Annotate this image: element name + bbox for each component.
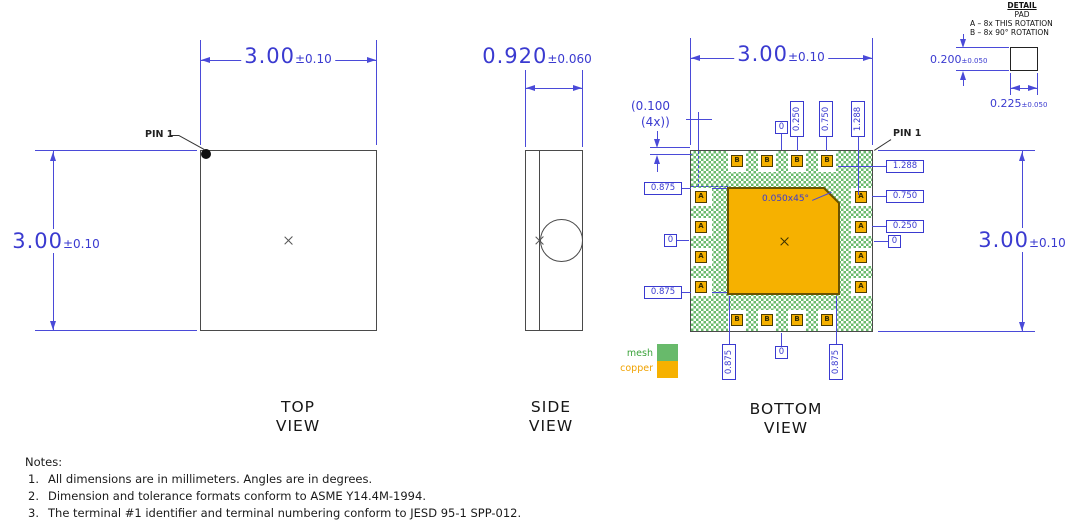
dim-label-top-0750: 0.750 [819, 101, 833, 137]
dim-arrow [1011, 85, 1020, 91]
pad-a: A [855, 251, 867, 263]
dim-arrow [1019, 152, 1025, 161]
label-leader [836, 296, 837, 344]
note-item-number: 3. [28, 506, 39, 520]
pad-a: A [695, 251, 707, 263]
pad-b: B [761, 155, 773, 167]
legend-mesh-swatch [657, 344, 678, 361]
dim-label-right-1288: 1.288 [886, 160, 924, 173]
pad-a: A [855, 281, 867, 293]
dim-arrow [863, 55, 872, 61]
legend-copper-swatch [657, 361, 678, 378]
dim-label-bottom-0: 0 [775, 346, 788, 359]
dim-label-left-0875-bottom: 0.875 [644, 286, 682, 299]
dim-arrow [50, 321, 56, 330]
side-view-width-dim: 0.920±0.060 [479, 44, 595, 68]
detail-subtitle: PAD [1015, 10, 1030, 19]
pad-a: A [855, 221, 867, 233]
bottom-view-height-dim: 3.00±0.10 [975, 228, 1069, 252]
detail-width-dim: 0.225±0.050 [988, 97, 1049, 110]
dim-ext-line [878, 331, 1035, 332]
pin1-marker-dot [201, 149, 211, 159]
dim-label-top-1288: 1.288 [851, 101, 865, 137]
dim-label-right-0250: 0.250 [886, 220, 924, 233]
dim-ext-line [1010, 73, 1011, 95]
dim-label-top-0250: 0.250 [790, 101, 804, 137]
pad-a: A [695, 281, 707, 293]
dim-ext-line [872, 38, 873, 145]
corner-offset-note: (4x)) [641, 115, 670, 129]
legend-copper-label: copper [600, 363, 653, 374]
notes-heading: Notes: [25, 455, 62, 469]
dim-line [963, 78, 964, 86]
dim-arrow [1019, 322, 1025, 331]
pad-b: B [791, 314, 803, 326]
note-item-text: The terminal #1 identifier and terminal … [48, 506, 521, 520]
top-view-title: TOPVIEW [276, 398, 320, 436]
dim-arrow [1028, 85, 1037, 91]
corner-offset-dashed-line [698, 151, 699, 187]
dim-label-bottom-0875-right: 0.875 [829, 344, 843, 380]
dim-ext-line [35, 150, 197, 151]
dim-arrow [691, 55, 700, 61]
note-item-text: All dimensions are in millimeters. Angle… [48, 472, 372, 486]
detail-note-a: A – 8x THIS ROTATION [970, 19, 1053, 28]
top-view-center-mark [283, 235, 294, 246]
pad-b: B [791, 155, 803, 167]
bottom-view-center-mark [779, 236, 790, 247]
dim-arrow [573, 85, 582, 91]
dim-arrow [960, 39, 966, 48]
dim-label-right-0750: 0.750 [886, 190, 924, 203]
top-view-height-dim: 3.00±0.10 [9, 229, 103, 253]
dim-ext-line [200, 40, 201, 145]
label-leader [858, 137, 859, 195]
corner-offset-tick [686, 119, 712, 120]
corner-offset-ext [657, 163, 658, 172]
side-view-title: SIDEVIEW [529, 398, 573, 436]
dim-label-left-0: 0 [664, 234, 677, 247]
dim-ext-line [582, 70, 583, 147]
detail-note-b: B – 8x 90° ROTATION [970, 28, 1049, 37]
dim-arrow [367, 57, 376, 63]
label-leader [874, 241, 888, 242]
detail-pad-outline [1010, 47, 1038, 71]
label-leader [781, 134, 782, 150]
note-item-number: 2. [28, 489, 39, 503]
pad-a: A [855, 191, 867, 203]
dim-ext-line [35, 330, 197, 331]
corner-offset-note: (0.100 [631, 99, 670, 113]
dim-arrow [201, 57, 210, 63]
pad-a: A [695, 221, 707, 233]
dim-label-left-0875-top: 0.875 [644, 182, 682, 195]
detail-height-dim: 0.200±0.050 [928, 53, 989, 66]
top-view-pin1-label: PIN 1 [145, 129, 173, 140]
dim-ext-line [525, 70, 526, 147]
label-leader [729, 296, 730, 344]
note-item-number: 1. [28, 472, 39, 486]
bottom-view-title: BOTTOMVIEW [750, 400, 823, 438]
dim-arrow [654, 139, 660, 148]
detail-title: DETAIL [1007, 1, 1036, 10]
package-drawing: 3.00±0.10 3.00±0.10 PIN 1 TOPVIEW 0.920±… [0, 0, 1080, 527]
dim-ext-line [878, 150, 1035, 151]
bottom-view-pin1-label: PIN 1 [893, 128, 921, 139]
pad-b: B [821, 155, 833, 167]
pad-b: B [731, 155, 743, 167]
note-item-text: Dimension and tolerance formats conform … [48, 489, 426, 503]
label-leader [826, 137, 827, 152]
dim-ext-line [376, 40, 377, 145]
corner-offset-ext [698, 112, 699, 150]
label-leader [797, 137, 798, 152]
bottom-view-width-dim: 3.00±0.10 [734, 42, 828, 66]
dim-arrow [50, 152, 56, 161]
label-leader [677, 240, 689, 241]
pad-b: B [821, 314, 833, 326]
pad-b: B [731, 314, 743, 326]
chamfer-note: 0.050x45° [762, 194, 809, 204]
side-view-circle [540, 219, 583, 262]
label-leader [838, 166, 886, 167]
dim-label-right-0: 0 [888, 235, 901, 248]
pad-a: A [695, 191, 707, 203]
dim-arrow [526, 85, 535, 91]
dim-ext-line [1037, 73, 1038, 95]
side-view-center-mark [534, 235, 545, 246]
legend-mesh-label: mesh [600, 348, 653, 359]
label-leader [781, 333, 782, 346]
pad-b: B [761, 314, 773, 326]
dim-label-bottom-0875-left: 0.875 [722, 344, 736, 380]
dim-label-top-0: 0 [775, 121, 788, 134]
corner-offset-dashed-line [691, 186, 728, 187]
top-view-width-dim: 3.00±0.10 [241, 44, 335, 68]
